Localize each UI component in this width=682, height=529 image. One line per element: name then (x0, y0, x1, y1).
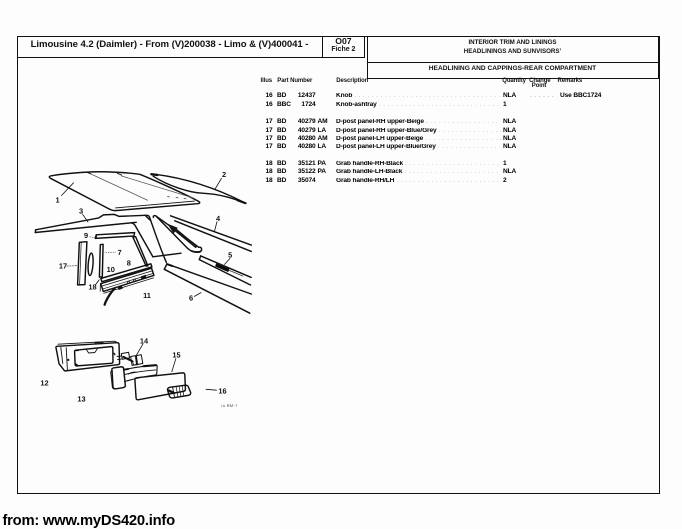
svg-text:13: 13 (77, 394, 85, 403)
svg-text:11: 11 (143, 291, 151, 300)
svg-text:17: 17 (59, 262, 67, 271)
svg-text:14: 14 (140, 337, 149, 346)
svg-text:2: 2 (222, 170, 226, 179)
svg-text:16: 16 (218, 386, 226, 395)
svg-text:10: 10 (107, 265, 115, 274)
svg-text:18: 18 (88, 282, 96, 291)
svg-text:8: 8 (127, 258, 131, 267)
svg-text:3: 3 (79, 206, 83, 215)
svg-text:1: 1 (55, 195, 59, 204)
svg-text:4: 4 (216, 214, 221, 223)
svg-text:15: 15 (172, 350, 180, 359)
svg-text:5: 5 (228, 250, 232, 259)
svg-text:12: 12 (40, 379, 48, 388)
svg-text:6: 6 (189, 294, 193, 303)
svg-text:ru BM-7: ru BM-7 (221, 403, 238, 408)
svg-text:9: 9 (84, 231, 88, 240)
svg-text:7: 7 (117, 248, 121, 257)
